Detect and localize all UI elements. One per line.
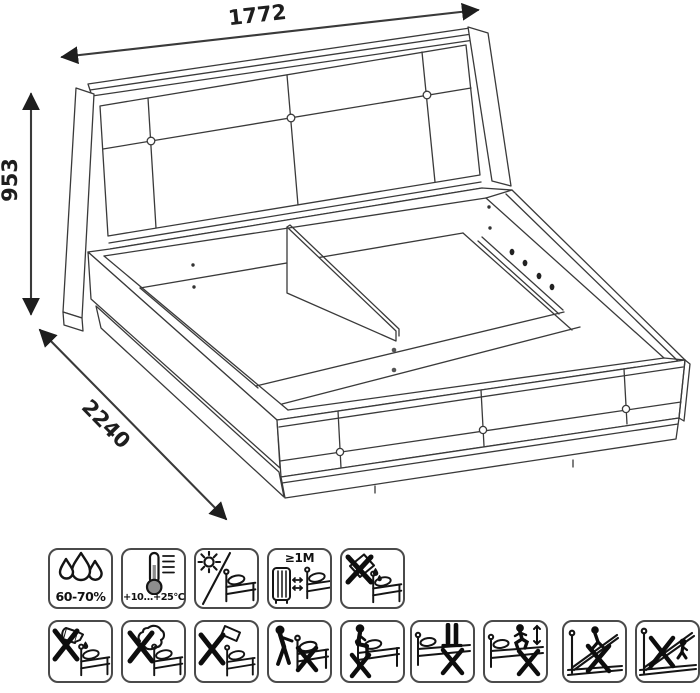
- no-direct-sunlight-icon: [194, 548, 259, 609]
- no-climbing-lifted-frame-icon: [562, 620, 627, 683]
- no-pouring-liquids-icon: [48, 620, 113, 683]
- no-spill-liquids-icon: [340, 548, 405, 609]
- humidity-range-icon: 60-70%: [48, 548, 113, 609]
- no-hammering-icon: [194, 620, 259, 683]
- no-jumping-on-bed-icon: [483, 620, 548, 683]
- height-dimension-label: 953: [0, 158, 22, 202]
- width-dimension-label: 1772: [227, 0, 288, 30]
- no-sitting-on-edge-icon: [340, 620, 405, 683]
- bed-technical-drawing: 1772 953 2240: [0, 0, 700, 545]
- technical-drawing-page: 1772 953 2240 60-70% +10...+: [0, 0, 700, 693]
- no-sitting-on-lifted-frame-icon: [635, 620, 700, 683]
- distance-label: ≥1M: [269, 552, 330, 564]
- storage-box: [88, 188, 690, 498]
- no-dragging-bed-icon: [267, 620, 332, 683]
- no-abrasive-objects-icon: [121, 620, 186, 683]
- no-standing-on-bed-icon: [410, 620, 475, 683]
- humidity-label: 60-70%: [50, 591, 111, 604]
- temperature-range-icon: +10...+25°C: [121, 548, 186, 609]
- length-dimension-label: 2240: [77, 395, 135, 454]
- temperature-label: +10...+25°C: [123, 593, 184, 603]
- radiator-distance-icon: ≥1M: [267, 548, 332, 609]
